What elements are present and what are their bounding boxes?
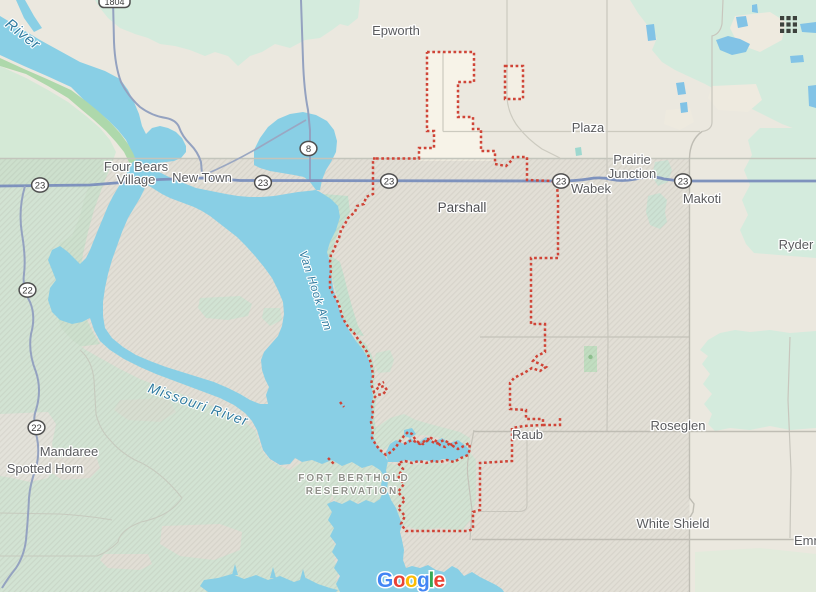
svg-text:22: 22 [22, 286, 33, 297]
svg-text:White Shield: White Shield [637, 516, 710, 531]
svg-text:o: o [405, 569, 418, 592]
svg-text:1804: 1804 [104, 0, 124, 7]
svg-text:Ryder: Ryder [779, 237, 814, 252]
svg-text:G: G [377, 569, 393, 592]
svg-text:22: 22 [31, 423, 42, 434]
svg-text:New Town: New Town [172, 170, 232, 185]
svg-text:23: 23 [556, 177, 567, 188]
svg-text:e: e [434, 569, 446, 592]
svg-text:o: o [393, 569, 406, 592]
svg-text:Prairie: Prairie [613, 152, 651, 167]
svg-text:Wabek: Wabek [571, 181, 611, 196]
svg-text:RESERVATION: RESERVATION [306, 486, 399, 497]
svg-text:Parshall: Parshall [438, 200, 487, 215]
svg-text:Roseglen: Roseglen [651, 418, 706, 433]
svg-text:23: 23 [678, 177, 689, 188]
svg-text:Spotted Horn: Spotted Horn [7, 461, 84, 476]
svg-text:8: 8 [306, 144, 311, 155]
svg-text:Plaza: Plaza [572, 120, 605, 135]
svg-text:23: 23 [258, 178, 269, 189]
svg-text:Village: Village [117, 172, 156, 187]
svg-text:Mandaree: Mandaree [40, 444, 99, 459]
svg-text:Epworth: Epworth [372, 23, 420, 38]
svg-text:Makoti: Makoti [683, 191, 721, 206]
svg-text:23: 23 [384, 177, 395, 188]
svg-text:Raub: Raub [512, 427, 543, 442]
svg-text:Emm: Emm [794, 533, 816, 548]
svg-text:Junction: Junction [608, 166, 656, 181]
svg-text:FORT BERTHOLD: FORT BERTHOLD [298, 473, 410, 484]
svg-text:23: 23 [35, 181, 46, 192]
